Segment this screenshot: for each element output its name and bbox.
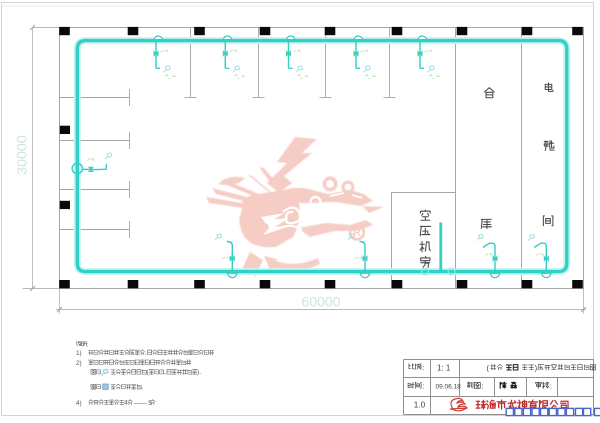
- svg-text:60000: 60000: [302, 294, 341, 310]
- svg-text:30000: 30000: [15, 135, 31, 175]
- svg-text::: :: [550, 382, 552, 391]
- svg-text:2): 2): [76, 360, 82, 367]
- svg-text::: :: [422, 363, 424, 372]
- svg-text::: :: [482, 382, 484, 391]
- svg-text:4: 4: [124, 400, 128, 407]
- svg-text:1): 1): [76, 350, 82, 357]
- svg-text:,: ,: [164, 369, 166, 376]
- svg-text::: :: [86, 342, 88, 349]
- svg-text:.: .: [199, 369, 201, 376]
- svg-text:4): 4): [76, 400, 82, 407]
- svg-text:.: .: [141, 384, 143, 391]
- svg-text:,: ,: [145, 350, 147, 357]
- svg-text:—— 5: —— 5: [134, 400, 152, 407]
- svg-text:09.06.18: 09.06.18: [436, 384, 462, 391]
- svg-text:1: 1: 1: 1: [437, 364, 451, 373]
- svg-text:1.0: 1.0: [414, 401, 426, 410]
- svg-text::: :: [422, 382, 424, 391]
